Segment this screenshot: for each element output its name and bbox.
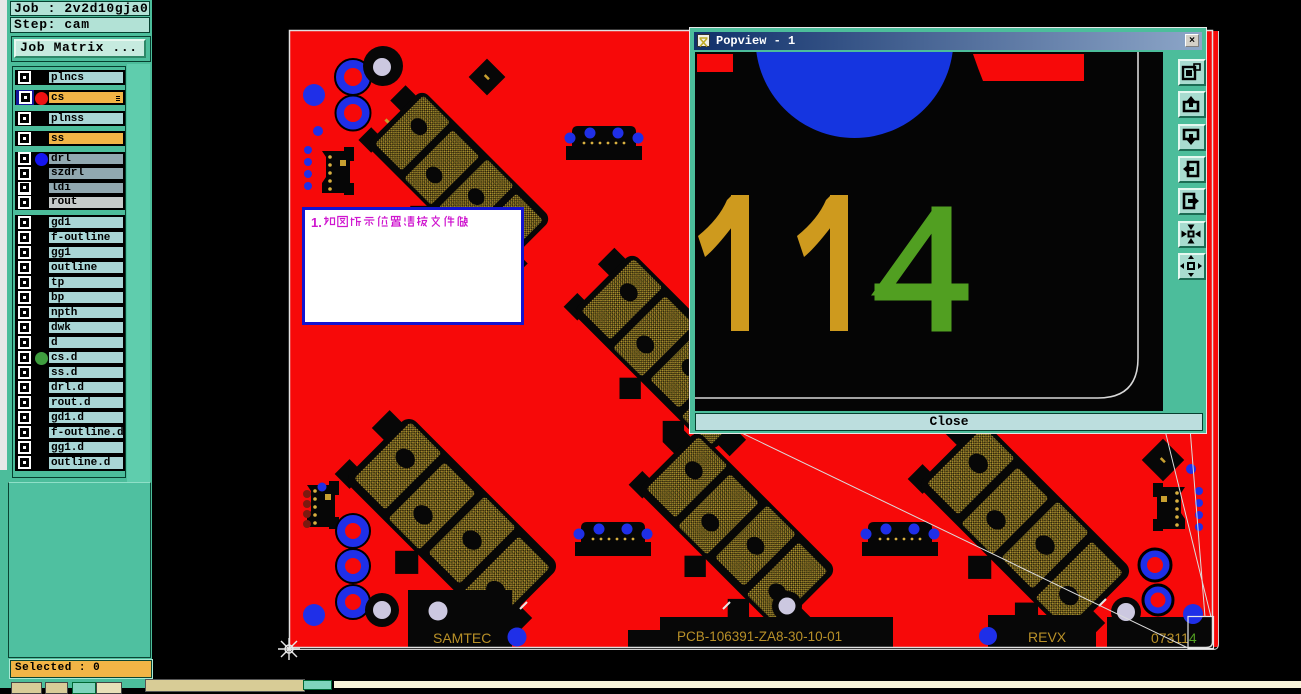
svg-text:REVX: REVX <box>1028 629 1067 645</box>
svg-text:PCB-106391-ZA8-30-10-01: PCB-106391-ZA8-30-10-01 <box>677 629 842 644</box>
svg-text:SAMTEC: SAMTEC <box>433 630 491 646</box>
svg-text:1.: 1. <box>311 215 322 230</box>
svg-text:073114: 073114 <box>1151 630 1197 646</box>
